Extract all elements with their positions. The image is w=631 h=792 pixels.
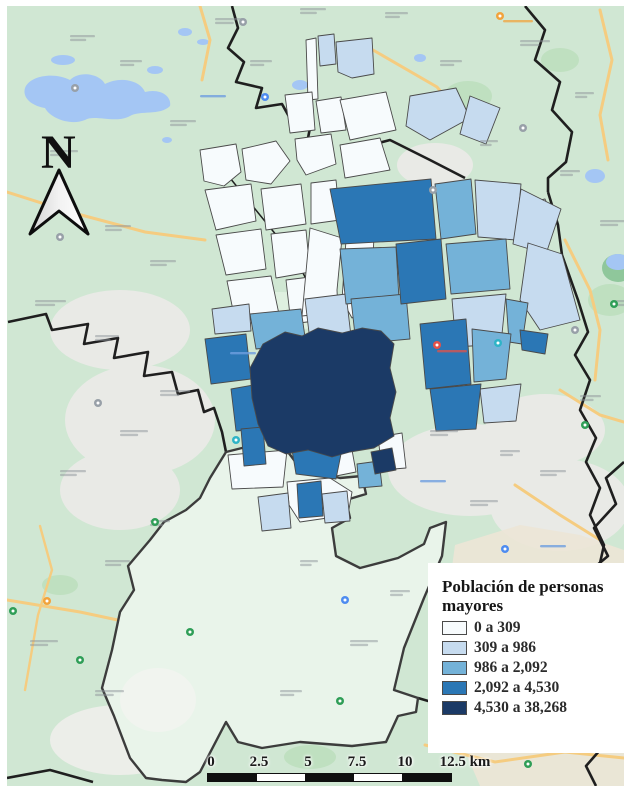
- lake: [414, 54, 426, 62]
- tract-polygon: [261, 184, 306, 230]
- tract-polygon: [205, 334, 251, 384]
- label-smudge: [215, 22, 234, 24]
- tract-polygon: [480, 384, 521, 423]
- label-smudge: [105, 225, 131, 227]
- label-smudge: [35, 300, 66, 302]
- tract-polygon: [306, 38, 318, 100]
- label-smudge: [35, 304, 55, 306]
- tract-polygon: [472, 329, 511, 382]
- map-pin-icon: [433, 341, 441, 349]
- lake: [178, 28, 192, 36]
- tract-polygon: [475, 180, 521, 240]
- label-smudge: [150, 260, 176, 262]
- legend-row: 2,092 a 4,530: [442, 679, 624, 697]
- urban-area: [60, 450, 180, 530]
- map-pin-icon: [239, 18, 247, 26]
- tract-polygon: [212, 304, 251, 334]
- label-smudge: [280, 690, 302, 692]
- map-pin-icon: [524, 760, 532, 768]
- label-smudge: [580, 395, 601, 397]
- urban-area: [120, 668, 196, 732]
- label-smudge: [70, 39, 86, 41]
- label-smudge: [250, 60, 272, 62]
- legend-row: 309 a 986: [442, 639, 624, 657]
- label-smudge: [500, 454, 513, 456]
- lake: [51, 55, 75, 65]
- label-smudge: [350, 640, 378, 642]
- map-figure: N 0 2.5 5 7.5 10 12.5 km: [0, 0, 631, 792]
- label-smudge: [560, 170, 580, 172]
- label-smudge: [60, 474, 77, 476]
- scale-segment: [354, 774, 403, 781]
- label-smudge-blue: [540, 545, 566, 547]
- label-smudge: [430, 434, 448, 436]
- label-smudge: [60, 470, 86, 472]
- label-smudge: [250, 64, 264, 66]
- label-smudge-blue: [230, 352, 256, 354]
- legend-swatch: [442, 701, 467, 715]
- tract-polygon: [330, 179, 436, 244]
- legend-swatch: [442, 641, 467, 655]
- legend-row: 0 a 309: [442, 619, 624, 637]
- label-smudge: [560, 174, 573, 176]
- label-smudge: [300, 560, 318, 562]
- label-smudge: [95, 339, 111, 341]
- map-pin-icon: [76, 656, 84, 664]
- scale-bar-labels: 0 2.5 5 7.5 10 12.5 km: [207, 754, 467, 771]
- map-pin-icon: [429, 186, 437, 194]
- label-smudge: [95, 690, 124, 692]
- lake: [162, 137, 172, 143]
- map-pin-icon: [610, 300, 618, 308]
- map-pin-icon: [336, 697, 344, 705]
- label-smudge: [300, 12, 317, 14]
- tract-polygon: [250, 328, 396, 457]
- lake: [197, 39, 209, 45]
- label-smudge: [575, 92, 594, 94]
- label-smudge: [390, 594, 403, 596]
- legend-label: 986 a 2,092: [474, 659, 548, 677]
- label-smudge: [540, 474, 557, 476]
- label-smudge: [160, 390, 190, 392]
- scale-tick-label: 7.5: [348, 754, 367, 771]
- legend-row: 4,530 a 38,268: [442, 699, 624, 717]
- tract-polygon: [336, 38, 374, 78]
- tract-polygon: [285, 92, 315, 133]
- legend-label: 4,530 a 38,268: [474, 699, 567, 717]
- label-smudge: [430, 430, 458, 432]
- map-pin-icon: [581, 421, 589, 429]
- tract-polygon: [435, 179, 476, 239]
- label-smudge: [575, 96, 587, 98]
- label-smudge: [580, 399, 594, 401]
- tract-polygon: [446, 239, 510, 294]
- map-pin-icon: [501, 545, 509, 553]
- scale-tick-label: 2.5: [250, 754, 269, 771]
- label-smudge: [30, 640, 58, 642]
- tract-polygon: [322, 491, 350, 523]
- map-pin-icon: [186, 628, 194, 636]
- map-pin-icon: [341, 596, 349, 604]
- label-smudge: [70, 35, 95, 37]
- map-pin-icon: [494, 339, 502, 347]
- label-smudge-blue: [200, 95, 226, 97]
- label-smudge: [500, 450, 520, 452]
- label-smudge: [520, 44, 540, 46]
- label-smudge: [95, 694, 114, 696]
- map-pin-icon: [571, 326, 579, 334]
- scale-bar-track: [207, 773, 452, 782]
- legend-label: 309 a 986: [474, 639, 536, 657]
- label-smudge: [160, 394, 180, 396]
- legend-row: 986 a 2,092: [442, 659, 624, 677]
- map-pin-icon: [261, 93, 269, 101]
- label-smudge: [470, 500, 498, 502]
- label-smudge-accent: [503, 20, 533, 22]
- label-smudge: [120, 434, 138, 436]
- label-smudge: [105, 560, 130, 562]
- scale-segment: [208, 774, 257, 781]
- map-pin-icon: [151, 518, 159, 526]
- map-pin-icon: [56, 233, 64, 241]
- map-pin-icon: [496, 12, 504, 20]
- label-smudge: [480, 144, 492, 146]
- map-pin-icon: [71, 84, 79, 92]
- label-smudge: [170, 120, 196, 122]
- legend-swatch: [442, 661, 467, 675]
- label-smudge: [120, 430, 148, 432]
- label-smudge: [30, 644, 48, 646]
- lake: [292, 80, 308, 90]
- lake: [147, 66, 163, 74]
- label-smudge: [105, 564, 121, 566]
- label-smudge-blue: [420, 480, 446, 482]
- label-smudge-accent: [437, 350, 467, 352]
- label-smudge: [600, 220, 624, 222]
- legend-title: Población de personas mayores: [442, 577, 620, 615]
- tract-polygon: [396, 239, 446, 304]
- map-legend: Población de personas mayores 0 a 309 30…: [428, 563, 624, 753]
- scale-tick-label: 10: [398, 754, 413, 771]
- tract-polygon: [420, 319, 471, 389]
- label-smudge: [300, 564, 312, 566]
- park-patch: [541, 48, 579, 72]
- lake: [585, 169, 605, 183]
- tract-polygon: [371, 448, 396, 474]
- label-smudge: [390, 590, 410, 592]
- scale-tick-label: 12.5 km: [440, 754, 491, 771]
- label-smudge: [350, 644, 368, 646]
- map-pin-icon: [232, 436, 240, 444]
- map-pin-icon: [9, 607, 17, 615]
- map-pin-icon: [519, 124, 527, 132]
- legend-swatch: [442, 681, 467, 695]
- tract-polygon: [318, 34, 336, 66]
- map-pin-icon: [43, 597, 51, 605]
- scale-segment: [257, 774, 306, 781]
- label-smudge: [540, 470, 566, 472]
- legend-swatch: [442, 621, 467, 635]
- map-canvas: N 0 2.5 5 7.5 10 12.5 km: [7, 6, 624, 786]
- label-smudge: [600, 224, 618, 226]
- label-smudge: [120, 60, 142, 62]
- label-smudge: [440, 64, 454, 66]
- label-smudge: [170, 124, 187, 126]
- label-smudge: [470, 504, 488, 506]
- scale-segment: [402, 774, 451, 781]
- label-smudge: [95, 335, 119, 337]
- label-smudge: [105, 229, 122, 231]
- label-smudge: [150, 264, 167, 266]
- tract-polygon: [258, 493, 291, 531]
- label-smudge: [520, 40, 550, 42]
- tract-polygon: [520, 330, 548, 354]
- label-smudge: [480, 140, 498, 142]
- label-smudge: [280, 694, 294, 696]
- scale-tick-label: 0: [207, 754, 215, 771]
- scale-bar: 0 2.5 5 7.5 10 12.5 km: [207, 754, 467, 782]
- scale-tick-label: 5: [304, 754, 312, 771]
- legend-label: 0 a 309: [474, 619, 521, 637]
- scale-segment: [305, 774, 354, 781]
- tract-polygon: [297, 481, 323, 518]
- tract-polygon: [271, 230, 310, 278]
- legend-label: 2,092 a 4,530: [474, 679, 559, 697]
- tract-polygon: [430, 384, 481, 431]
- label-smudge: [440, 60, 462, 62]
- label-smudge: [385, 16, 400, 18]
- map-pin-icon: [94, 399, 102, 407]
- label-smudge: [120, 64, 134, 66]
- label-smudge: [300, 8, 326, 10]
- label-smudge: [385, 12, 408, 14]
